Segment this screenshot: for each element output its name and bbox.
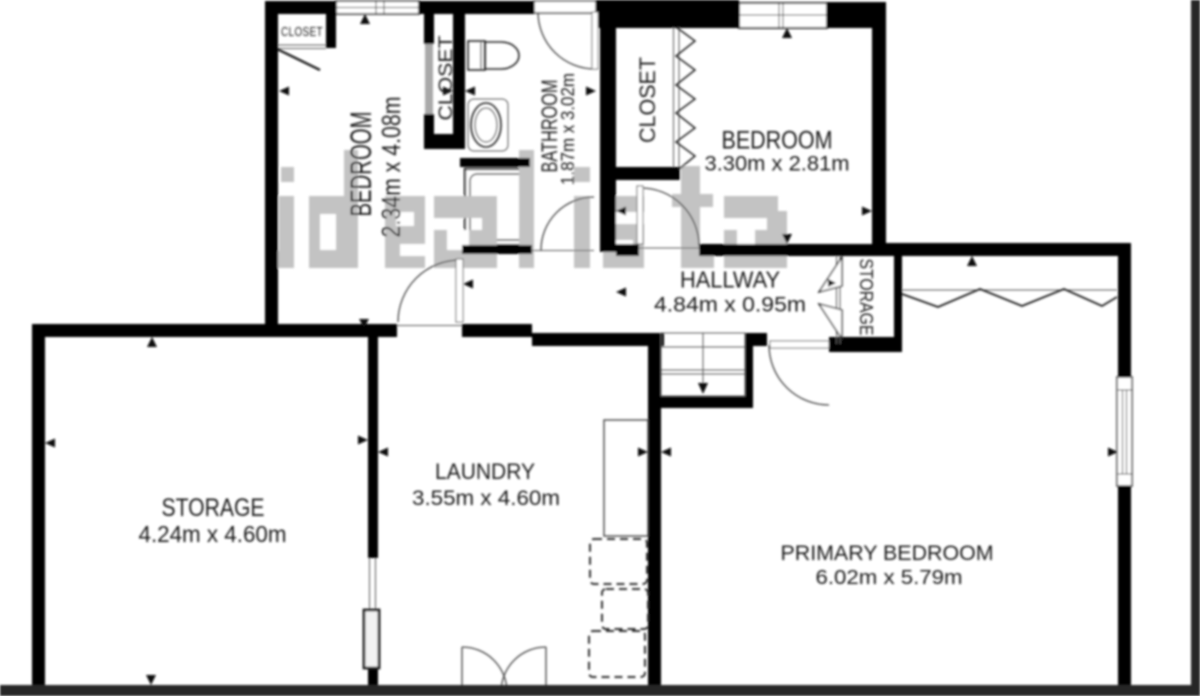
svg-text:CLOSET: CLOSET [635,57,660,143]
svg-text:CLOSET: CLOSET [281,24,323,39]
svg-text:4.84m x 0.95m: 4.84m x 0.95m [654,294,806,317]
svg-text:PRIMARY BEDROOM: PRIMARY BEDROOM [781,542,994,565]
svg-text:3.55m x 4.60m: 3.55m x 4.60m [412,487,560,510]
svg-text:STORAGE: STORAGE [162,494,265,522]
svg-text:1.87m x 3.02m: 1.87m x 3.02m [558,73,578,185]
svg-text:BEDROOM: BEDROOM [345,112,378,217]
svg-text:6.02m x 5.79m: 6.02m x 5.79m [816,567,963,589]
svg-text:LAUNDRY: LAUNDRY [435,459,535,484]
svg-text:STORAGE: STORAGE [856,259,876,336]
svg-text:CLOSET: CLOSET [436,35,457,120]
svg-text:2.34m x 4.08m: 2.34m x 4.08m [376,97,406,238]
svg-text:HALLWAY: HALLWAY [680,267,780,293]
svg-text:4.24m x 4.60m: 4.24m x 4.60m [139,521,287,547]
svg-text:3.30m x 2.81m: 3.30m x 2.81m [705,153,850,176]
svg-text:BEDROOM: BEDROOM [722,127,833,155]
